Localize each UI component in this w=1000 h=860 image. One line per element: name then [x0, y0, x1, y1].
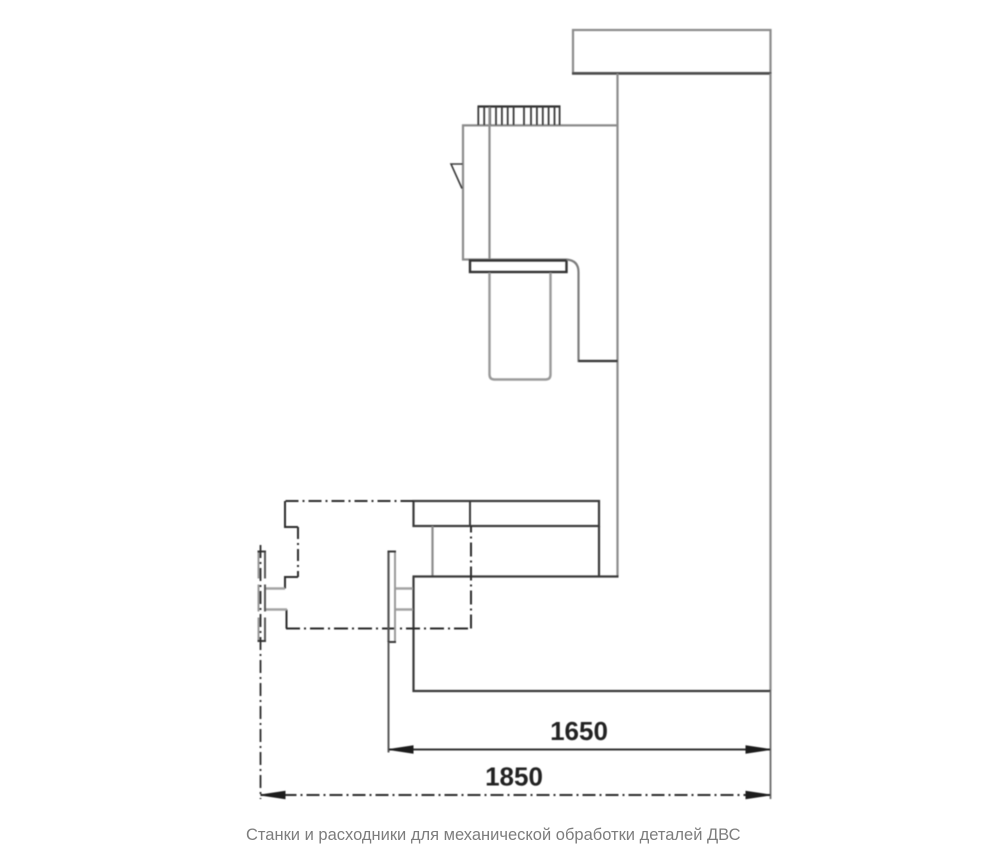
svg-text:1650: 1650 — [550, 716, 608, 746]
svg-text:1850: 1850 — [485, 762, 543, 792]
